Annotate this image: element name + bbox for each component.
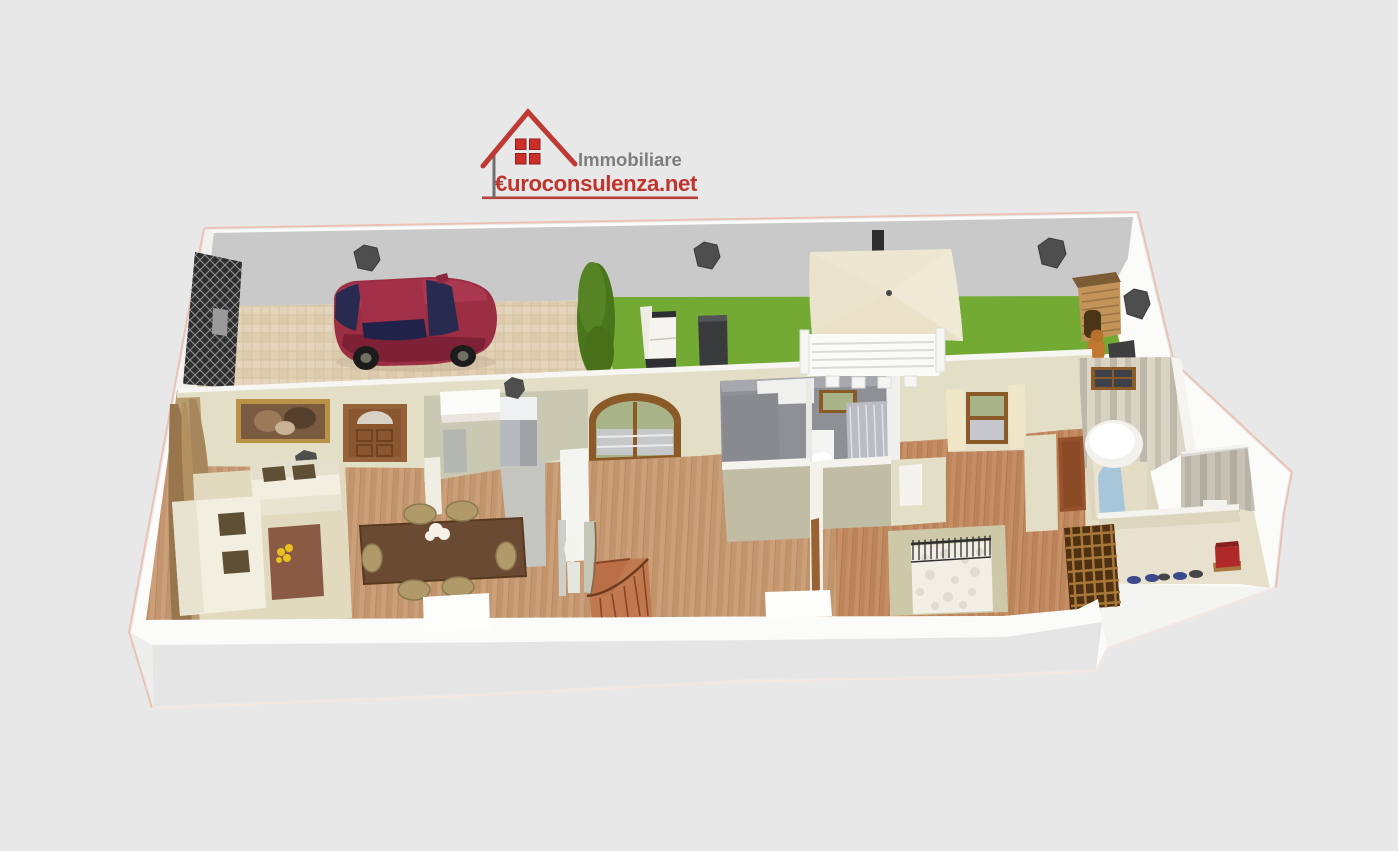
svg-text:Immobiliare: Immobiliare	[578, 149, 682, 170]
svg-text:€uroconsulenza.net: €uroconsulenza.net	[495, 171, 698, 196]
